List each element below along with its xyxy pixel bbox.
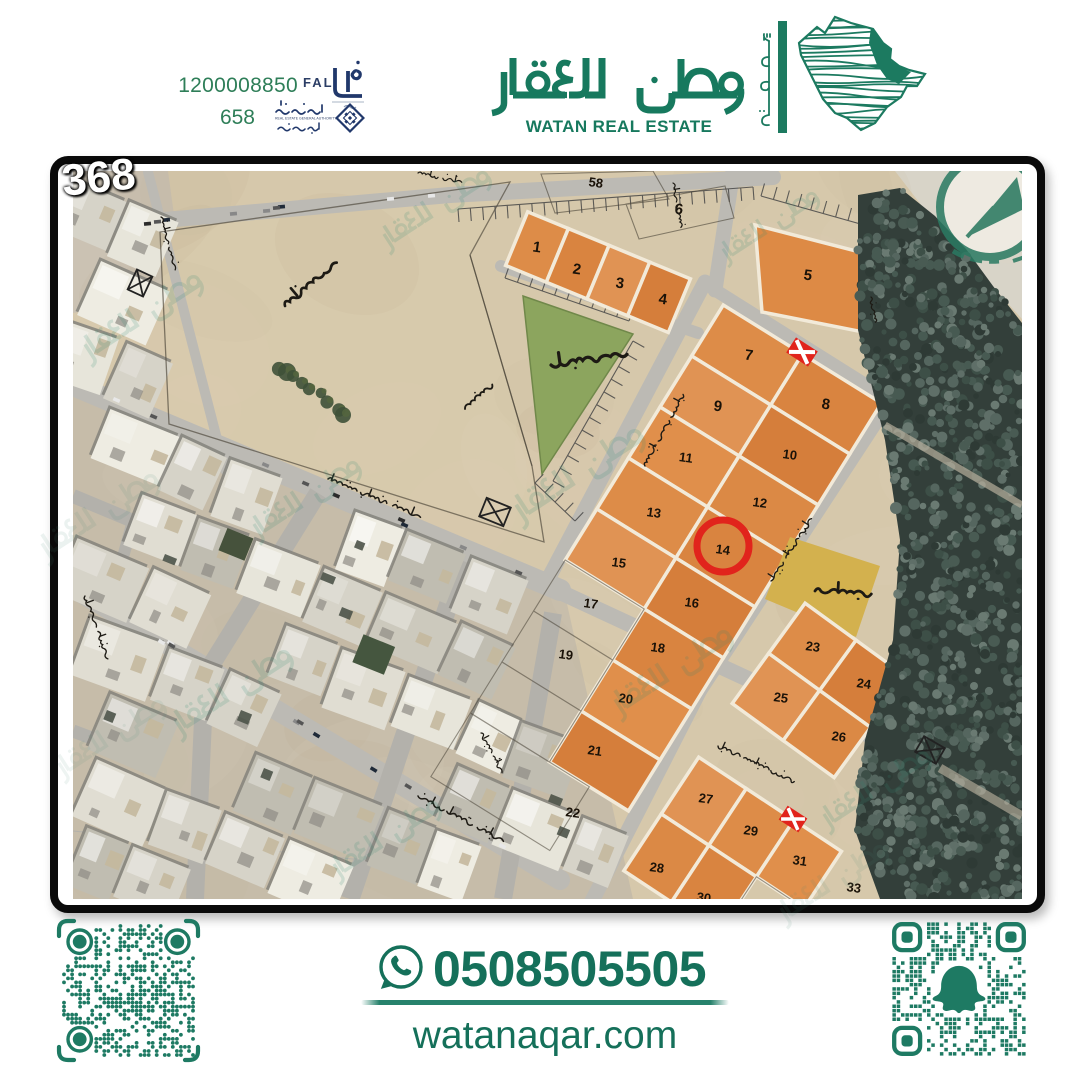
svg-text:18: 18 [650,639,666,656]
svg-text:21: 21 [587,742,603,759]
svg-text:25: 25 [773,689,789,706]
svg-text:26: 26 [831,728,847,745]
svg-text:17: 17 [583,595,599,612]
svg-text:14: 14 [715,541,732,558]
svg-text:12: 12 [752,494,768,511]
svg-text:23: 23 [805,638,821,655]
svg-text:13: 13 [646,504,662,521]
svg-text:33: 33 [846,879,862,896]
svg-text:10: 10 [782,446,798,463]
svg-text:REAL ESTATE GENERAL AUTHORITY: REAL ESTATE GENERAL AUTHORITY [275,117,337,121]
svg-text:24: 24 [856,675,873,692]
svg-text:28: 28 [649,859,665,876]
svg-text:16: 16 [684,594,700,611]
svg-text:19: 19 [558,646,574,663]
svg-text:29: 29 [743,822,759,839]
svg-text:30: 30 [696,889,712,899]
svg-text:58: 58 [588,174,604,191]
svg-text:31: 31 [792,852,808,869]
svg-text:FAL: FAL [303,75,334,90]
svg-text:11: 11 [678,449,694,466]
svg-text:22: 22 [565,804,581,821]
svg-text:27: 27 [698,790,714,807]
svg-text:15: 15 [611,554,627,571]
svg-text:WATAN REAL ESTATE: WATAN REAL ESTATE [526,117,713,136]
